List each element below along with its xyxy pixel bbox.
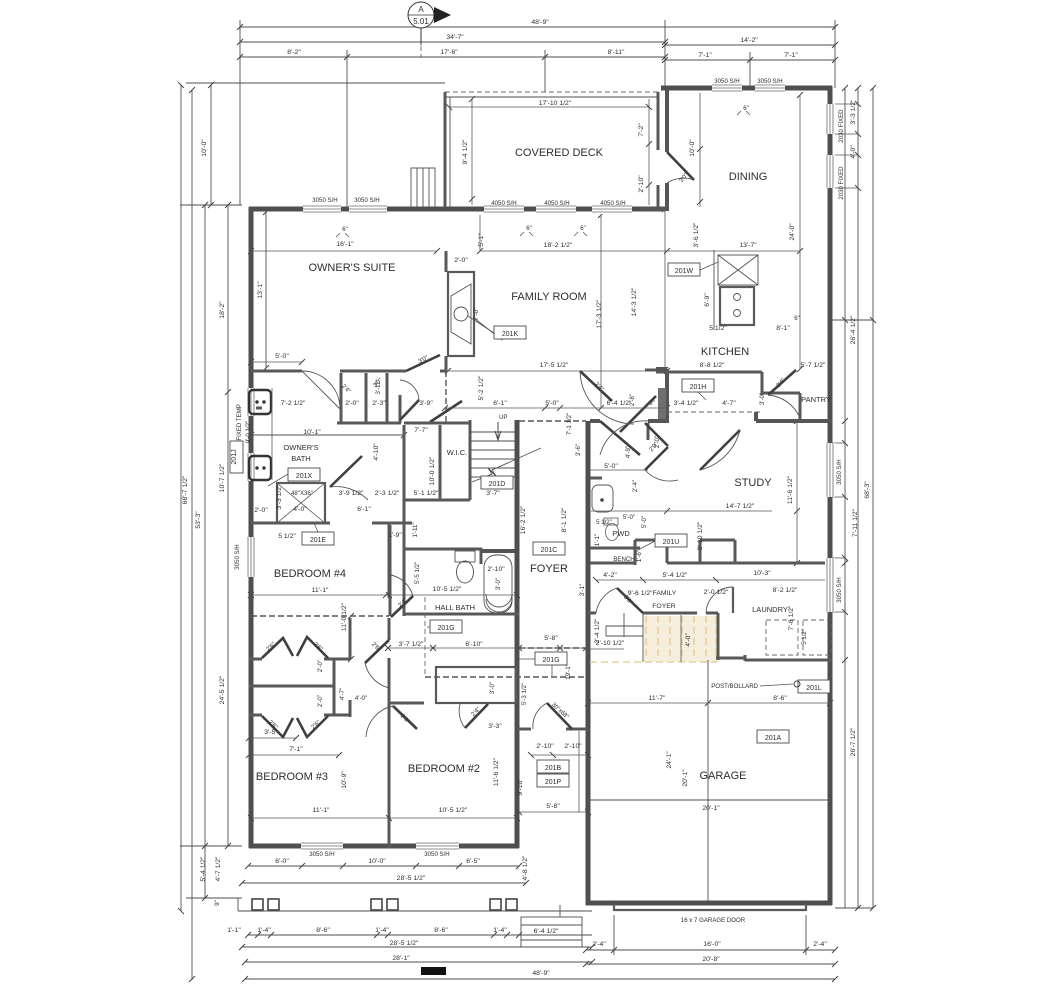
svg-text:UP: UP <box>499 414 507 421</box>
svg-text:17'-10 1/2": 17'-10 1/2" <box>539 100 572 107</box>
svg-text:9'-0 1/2": 9'-0 1/2" <box>245 421 252 443</box>
svg-text:3'-3": 3'-3" <box>488 723 502 730</box>
svg-text:5 1/2": 5 1/2" <box>801 629 808 645</box>
svg-text:7'-1": 7'-1" <box>698 52 712 59</box>
svg-text:5'-1": 5'-1" <box>478 233 485 247</box>
svg-text:10'-1": 10'-1" <box>303 429 321 436</box>
svg-text:5'-0": 5'-0" <box>545 400 559 407</box>
svg-text:201D: 201D <box>489 481 506 488</box>
svg-text:14'-2": 14'-2" <box>740 37 758 44</box>
svg-text:2'-3 1/2": 2'-3 1/2" <box>375 490 400 497</box>
svg-text:3'-1": 3'-1" <box>579 584 586 596</box>
svg-text:5'-5 1/2": 5'-5 1/2" <box>414 562 421 584</box>
svg-text:8'-1 1/2": 8'-1 1/2" <box>561 507 568 532</box>
svg-text:2'-0": 2'-0" <box>254 507 268 514</box>
svg-text:6": 6" <box>743 105 749 112</box>
svg-text:6'-1": 6'-1" <box>493 400 507 407</box>
svg-text:5'-3 1/2": 5'-3 1/2" <box>521 683 528 705</box>
svg-text:9'-4 1/2": 9'-4 1/2" <box>462 139 469 164</box>
svg-text:DINING: DINING <box>729 171 768 183</box>
svg-text:11'-6 1/2": 11'-6 1/2" <box>493 757 500 786</box>
svg-text:8'-8 1/2": 8'-8 1/2" <box>700 362 725 369</box>
svg-text:201L: 201L <box>806 685 822 692</box>
svg-text:201U: 201U <box>663 539 680 546</box>
svg-text:POST/BOLLARD: POST/BOLLARD <box>711 683 758 690</box>
svg-text:20'-8": 20'-8" <box>702 956 720 963</box>
svg-text:7'-7": 7'-7" <box>414 427 428 434</box>
svg-text:4'-10": 4'-10" <box>373 443 380 461</box>
svg-text:26'-7 1/2": 26'-7 1/2" <box>850 727 857 756</box>
svg-text:13'-7": 13'-7" <box>739 242 757 249</box>
svg-text:1'-6": 1'-6" <box>636 550 643 562</box>
svg-text:3'-9": 3'-9" <box>419 400 433 407</box>
svg-text:3'-9 1/2": 3'-9 1/2" <box>339 490 364 497</box>
svg-text:2'-10": 2'-10" <box>638 175 645 193</box>
svg-text:5'-0": 5'-0" <box>604 463 618 470</box>
svg-text:6'-9": 6'-9" <box>704 293 711 307</box>
svg-text:1'-4": 1'-4" <box>257 927 271 934</box>
svg-text:201G: 201G <box>437 625 454 632</box>
svg-text:9'-10": 9'-10" <box>517 778 524 796</box>
svg-text:7'-8 1/2": 7'-8 1/2" <box>788 605 795 630</box>
svg-text:HALL BATH: HALL BATH <box>435 603 475 612</box>
svg-text:201B: 201B <box>545 765 562 772</box>
svg-text:201W: 201W <box>675 268 694 275</box>
svg-text:10'-0": 10'-0" <box>368 858 386 865</box>
svg-text:GARAGE: GARAGE <box>699 770 746 782</box>
svg-text:201J: 201J <box>231 449 238 464</box>
svg-text:4'-0": 4'-0" <box>293 506 307 513</box>
svg-text:19'-1": 19'-1" <box>565 664 572 680</box>
svg-text:10'-7 1/2": 10'-7 1/2" <box>219 463 226 492</box>
svg-text:3050 S/H: 3050 S/H <box>836 459 843 484</box>
svg-text:4'-9": 4'-9" <box>625 446 632 458</box>
svg-text:16'-1": 16'-1" <box>336 241 354 248</box>
svg-text:17'-6": 17'-6" <box>440 49 458 56</box>
svg-text:16'-0": 16'-0" <box>703 941 721 948</box>
svg-text:28'-5 1/2": 28'-5 1/2" <box>390 940 419 947</box>
svg-text:8'-6": 8'-6" <box>434 927 448 934</box>
svg-text:18'-2": 18'-2" <box>219 301 226 319</box>
svg-text:3050 S/H: 3050 S/H <box>757 78 782 85</box>
svg-text:3050 S/H: 3050 S/H <box>836 577 843 602</box>
svg-text:7'-2 1/2": 7'-2 1/2" <box>281 400 306 407</box>
svg-text:24'-5 1/2": 24'-5 1/2" <box>219 675 226 704</box>
svg-text:4'-7": 4'-7" <box>339 688 346 700</box>
svg-text:7'-1": 7'-1" <box>289 746 303 753</box>
svg-text:6'-5": 6'-5" <box>466 858 480 865</box>
svg-text:7'-1 1/2": 7'-1 1/2" <box>566 413 573 435</box>
svg-text:5'-8": 5'-8" <box>544 635 558 642</box>
svg-text:3'-7 1/2": 3'-7 1/2" <box>399 641 424 648</box>
svg-text:11'-1": 11'-1" <box>312 587 329 594</box>
svg-text:4'-0": 4'-0" <box>685 633 692 647</box>
svg-text:34'-7": 34'-7" <box>446 34 464 41</box>
svg-text:3'-3 1/2": 3'-3 1/2" <box>850 99 857 124</box>
svg-text:3'-0": 3'-0" <box>495 578 502 590</box>
svg-text:3'-4 1/2": 3'-4 1/2" <box>674 400 699 407</box>
svg-text:2030 FIXED: 2030 FIXED <box>838 109 845 143</box>
svg-text:2030 FIXED: 2030 FIXED <box>838 166 845 200</box>
svg-text:53'-3": 53'-3" <box>195 511 202 529</box>
svg-text:5'-8": 5'-8" <box>546 803 560 810</box>
svg-text:FAMILY ROOM: FAMILY ROOM <box>511 291 586 303</box>
svg-text:8'-2": 8'-2" <box>287 49 301 56</box>
svg-text:2'-10": 2'-10" <box>536 743 554 750</box>
svg-text:48'-9": 48'-9" <box>531 19 549 26</box>
svg-text:20'-1": 20'-1" <box>702 805 720 812</box>
svg-text:5'-2 1/2": 5'-2 1/2" <box>478 375 485 400</box>
svg-text:LAUNDRY: LAUNDRY <box>752 605 788 614</box>
svg-text:28'-1": 28'-1" <box>392 955 410 962</box>
svg-text:1'-4": 1'-4" <box>493 927 507 934</box>
svg-text:3'-0": 3'-0" <box>759 393 766 405</box>
svg-text:6'-10": 6'-10" <box>465 641 483 648</box>
svg-text:FOYER: FOYER <box>530 563 568 575</box>
svg-text:20'-1": 20'-1" <box>682 769 689 787</box>
svg-text:17'-5 1/2": 17'-5 1/2" <box>540 362 569 369</box>
svg-text:11'-7": 11'-7" <box>649 695 666 702</box>
svg-text:3'-7": 3'-7" <box>486 490 500 497</box>
svg-text:4050 S/H: 4050 S/H <box>600 200 625 207</box>
svg-text:A: A <box>418 5 424 14</box>
svg-text:11'-1": 11'-1" <box>313 807 330 814</box>
svg-text:10'-5 1/2": 10'-5 1/2" <box>439 807 468 814</box>
svg-text:201E: 201E <box>310 537 327 544</box>
svg-text:6'-0": 6'-0" <box>275 858 289 865</box>
svg-text:10'-3": 10'-3" <box>753 570 771 577</box>
svg-text:10'-0 1/2": 10'-0 1/2" <box>429 456 436 485</box>
svg-text:4050 S/H: 4050 S/H <box>491 200 516 207</box>
svg-text:2'-4": 2'-4" <box>632 480 639 492</box>
svg-text:6": 6" <box>526 226 531 232</box>
svg-text:9": 9" <box>649 400 655 407</box>
svg-text:3'-10 1/2": 3'-10 1/2" <box>697 521 704 550</box>
svg-text:18'-2 1/2": 18'-2 1/2" <box>544 242 573 249</box>
svg-text:2'-0": 2'-0" <box>345 400 359 407</box>
svg-text:10'-0": 10'-0" <box>689 139 696 157</box>
svg-text:7'-1": 7'-1" <box>784 52 798 59</box>
svg-text:6'-1": 6'-1" <box>357 506 371 513</box>
svg-text:68'-3": 68'-3" <box>864 481 871 499</box>
svg-text:26'-4 1/2": 26'-4 1/2" <box>850 315 857 344</box>
svg-text:3050 S/H: 3050 S/H <box>714 78 739 85</box>
svg-text:7'-11 1/2": 7'-11 1/2" <box>852 508 859 537</box>
svg-text:2'-8": 2'-8" <box>629 394 636 406</box>
svg-text:2'-10": 2'-10" <box>487 566 505 573</box>
svg-text:4'-0": 4'-0" <box>355 695 367 702</box>
svg-text:5 1/2": 5 1/2" <box>709 325 727 332</box>
svg-text:8'-2 1/2": 8'-2 1/2" <box>773 587 798 594</box>
svg-text:7'-0": 7'-0" <box>473 307 480 321</box>
svg-text:2'-4": 2'-4" <box>813 941 827 948</box>
svg-text:3'-0": 3'-0" <box>489 682 496 694</box>
svg-text:2'-0": 2'-0" <box>317 660 324 672</box>
svg-text:201C: 201C <box>541 547 558 554</box>
svg-text:48"X36": 48"X36" <box>291 490 313 497</box>
svg-text:11'-0 1/2": 11'-0 1/2" <box>341 602 348 631</box>
svg-text:3050 S/H: 3050 S/H <box>424 851 449 858</box>
svg-text:1'-1": 1'-1" <box>594 534 601 546</box>
svg-text:BENCH: BENCH <box>613 556 634 563</box>
svg-text:6": 6" <box>794 315 800 322</box>
svg-text:8'-11": 8'-11" <box>608 49 625 56</box>
svg-text:COVERED DECK: COVERED DECK <box>515 147 604 159</box>
svg-text:8'-1": 8'-1" <box>776 325 790 332</box>
svg-text:KITCHEN: KITCHEN <box>701 346 749 358</box>
svg-text:1'-1": 1'-1" <box>227 927 241 934</box>
svg-text:17'-3 1/2": 17'-3 1/2" <box>596 299 603 328</box>
svg-text:11'-6 1/2": 11'-6 1/2" <box>787 475 794 504</box>
svg-text:1'-11": 1'-11" <box>412 522 419 537</box>
svg-text:5 1/2": 5 1/2" <box>278 533 296 540</box>
svg-text:3'-6": 3'-6" <box>575 444 582 456</box>
svg-text:W.I.C.: W.I.C. <box>447 448 467 457</box>
svg-text:BEDROOM #3: BEDROOM #3 <box>256 771 328 783</box>
svg-text:201K: 201K <box>502 331 519 338</box>
svg-text:4'-0": 4'-0" <box>850 145 857 159</box>
svg-text:4050 S/H: 4050 S/H <box>544 200 569 207</box>
svg-text:3'-6 1/2": 3'-6 1/2" <box>693 222 700 247</box>
svg-text:OWNER'S: OWNER'S <box>283 443 318 452</box>
svg-text:201A: 201A <box>765 735 782 742</box>
svg-text:1'-9": 1'-9" <box>388 532 402 539</box>
svg-text:48'-9": 48'-9" <box>532 970 550 977</box>
svg-text:4'-7 1/2": 4'-7 1/2" <box>215 856 222 881</box>
svg-text:2'-4": 2'-4" <box>592 941 606 948</box>
svg-text:7'-2": 7'-2" <box>638 123 645 137</box>
svg-text:16'-2 1/2": 16'-2 1/2" <box>520 505 527 534</box>
svg-text:OWNER'S SUITE: OWNER'S SUITE <box>308 262 395 274</box>
svg-text:3050 S/H: 3050 S/H <box>309 851 334 858</box>
svg-text:2'-3": 2'-3" <box>372 400 386 407</box>
svg-text:2'-10": 2'-10" <box>564 743 582 750</box>
svg-text:3'-5": 3'-5" <box>264 729 278 736</box>
svg-text:6'-4 1/2": 6'-4 1/2" <box>534 928 559 935</box>
svg-text:3050 S/H: 3050 S/H <box>312 197 337 204</box>
svg-text:5'-0": 5'-0" <box>641 516 648 528</box>
svg-text:BATH: BATH <box>291 454 310 463</box>
svg-text:4'-7": 4'-7" <box>722 400 736 407</box>
svg-text:1'-4": 1'-4" <box>375 927 389 934</box>
svg-text:4'-2": 4'-2" <box>603 572 617 579</box>
svg-text:2'-0": 2'-0" <box>654 436 661 448</box>
svg-text:2'-0": 2'-0" <box>317 695 324 707</box>
svg-text:2'-0": 2'-0" <box>454 257 468 264</box>
svg-text:STUDY: STUDY <box>734 477 772 489</box>
svg-text:8'-6": 8'-6" <box>773 695 787 702</box>
svg-text:PWD: PWD <box>612 529 630 538</box>
svg-text:2'-0 1/2": 2'-0 1/2" <box>704 589 729 596</box>
svg-text:5'-0": 5'-0" <box>623 514 635 521</box>
svg-text:6": 6" <box>580 226 585 232</box>
svg-text:5'-0": 5'-0" <box>275 353 289 360</box>
svg-text:6": 6" <box>342 227 347 233</box>
svg-text:2'-10 1/2": 2'-10 1/2" <box>596 640 625 647</box>
svg-text:201G: 201G <box>542 657 559 664</box>
svg-text:201H: 201H <box>690 384 707 391</box>
svg-text:10'-9": 10'-9" <box>341 771 348 789</box>
svg-text:10'-0": 10'-0" <box>201 139 208 157</box>
svg-text:201P: 201P <box>545 779 562 786</box>
svg-text:5.01: 5.01 <box>413 17 429 26</box>
svg-text:PANTRY: PANTRY <box>801 395 831 404</box>
svg-text:5 1/2": 5 1/2" <box>596 519 612 526</box>
svg-text:5'-4 1/2": 5'-4 1/2" <box>663 572 688 579</box>
svg-text:5'-7 1/2": 5'-7 1/2" <box>801 362 826 369</box>
svg-text:5'-1 1/2": 5'-1 1/2" <box>414 490 439 497</box>
svg-text:14'-7 1/2": 14'-7 1/2" <box>726 503 755 510</box>
svg-text:5'-4 1/2": 5'-4 1/2" <box>200 856 207 881</box>
svg-text:10'-5 1/2": 10'-5 1/2" <box>433 586 462 593</box>
svg-text:3'-3 1/2": 3'-3 1/2" <box>276 484 283 509</box>
svg-text:9": 9" <box>214 900 221 906</box>
svg-text:3050 S/H: 3050 S/H <box>234 544 241 569</box>
svg-text:9'-6 1/2"FAMILY: 9'-6 1/2"FAMILY <box>628 590 677 597</box>
svg-text:BEDROOM #4: BEDROOM #4 <box>274 568 346 580</box>
svg-text:8'-6": 8'-6" <box>316 927 330 934</box>
svg-text:BEDROOM #2: BEDROOM #2 <box>408 763 480 775</box>
svg-text:16 x 7 GARAGE DOOR: 16 x 7 GARAGE DOOR <box>681 917 746 924</box>
svg-text:24'-1": 24'-1" <box>666 751 673 769</box>
svg-text:14'-3 1/2": 14'-3 1/2" <box>631 287 638 316</box>
svg-text:4'-8 1/2": 4'-8 1/2" <box>522 855 529 880</box>
svg-text:13'-1": 13'-1" <box>257 281 264 299</box>
svg-text:68'-7 1/2": 68'-7 1/2" <box>182 475 189 504</box>
svg-text:28'-5 1/2": 28'-5 1/2" <box>397 875 426 882</box>
svg-text:3050 S/H: 3050 S/H <box>354 197 379 204</box>
svg-text:201X: 201X <box>296 473 313 480</box>
svg-text:24'-0": 24'-0" <box>789 223 796 241</box>
svg-text:FOYER: FOYER <box>652 603 676 610</box>
